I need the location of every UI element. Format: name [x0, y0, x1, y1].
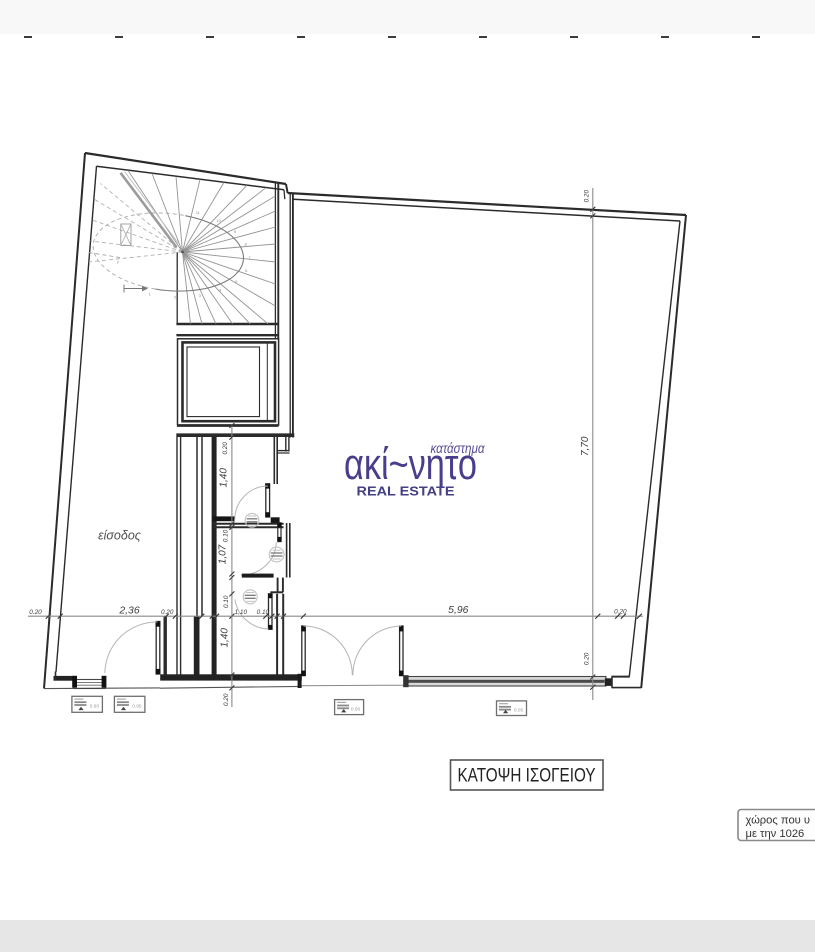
svg-text:ΚΑΤΟΨΗ ΙΣΟΓΕΙΟΥ: ΚΑΤΟΨΗ ΙΣΟΓΕΙΟΥ: [458, 766, 596, 787]
svg-text:11: 11: [196, 210, 201, 215]
svg-text:7,70: 7,70: [580, 436, 591, 456]
svg-text:0.20: 0.20: [584, 190, 591, 203]
svg-text:2: 2: [174, 295, 177, 300]
svg-text:10: 10: [216, 218, 221, 223]
svg-text:χώρος που υ: χώρος που υ: [746, 815, 811, 827]
svg-text:0.20: 0.20: [223, 693, 230, 706]
svg-text:9: 9: [234, 229, 237, 234]
svg-text:1: 1: [148, 292, 151, 297]
svg-text:είσοδος: είσοδος: [98, 529, 142, 543]
svg-text:2,36: 2,36: [118, 605, 139, 616]
svg-text:1,40: 1,40: [220, 628, 231, 648]
svg-text:REAL ESTATE: REAL ESTATE: [357, 485, 455, 499]
svg-text:0.10: 0.10: [223, 595, 230, 608]
svg-text:6: 6: [245, 268, 248, 273]
svg-text:3: 3: [199, 293, 202, 298]
svg-text:5,96: 5,96: [448, 605, 468, 616]
svg-text:0.20: 0.20: [29, 609, 42, 616]
svg-text:0.20: 0.20: [161, 609, 174, 616]
svg-text:8: 8: [244, 242, 247, 247]
svg-text:0.10: 0.10: [223, 529, 230, 542]
svg-text:0.10: 0.10: [257, 609, 270, 616]
svg-text:0.20: 0.20: [614, 609, 627, 616]
svg-text:1,40: 1,40: [219, 468, 230, 488]
svg-text:0.05: 0.05: [514, 707, 524, 713]
svg-text:1,10: 1,10: [235, 609, 248, 616]
svg-text:5: 5: [235, 279, 238, 284]
svg-text:με την 1026: με την 1026: [746, 828, 805, 840]
svg-text:0.20: 0.20: [583, 652, 590, 665]
svg-text:0.93: 0.93: [90, 704, 100, 710]
svg-text:1,07: 1,07: [218, 544, 229, 564]
svg-text:ακί~νητο: ακί~νητο: [344, 440, 477, 489]
svg-text:0.90: 0.90: [351, 706, 361, 712]
svg-text:4: 4: [219, 288, 222, 293]
svg-text:0.95: 0.95: [132, 704, 142, 710]
svg-text:0.20: 0.20: [222, 442, 229, 455]
